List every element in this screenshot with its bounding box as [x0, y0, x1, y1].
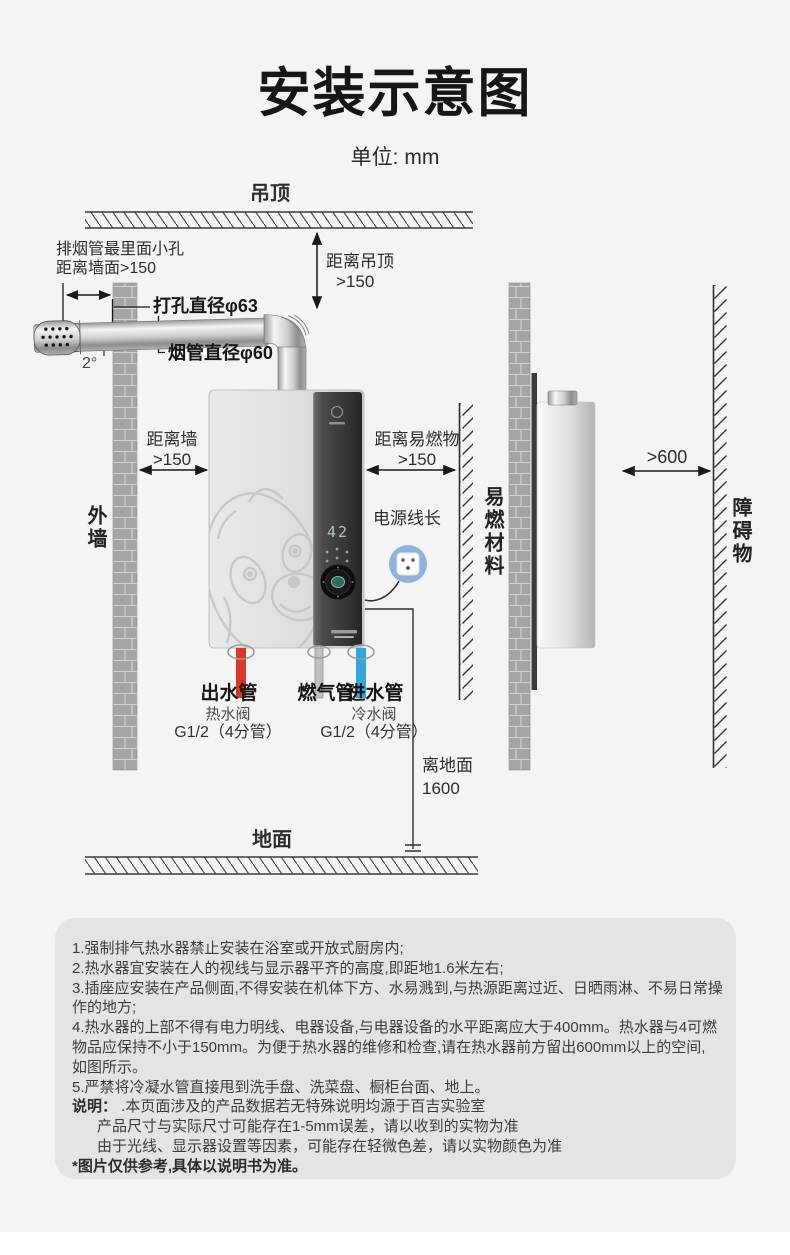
dist-ceiling-value: >150	[336, 272, 374, 292]
hot-valve-spec: G1/2（4分管）	[163, 724, 293, 742]
above-ground-value: 1600	[422, 779, 460, 799]
model-label	[331, 630, 357, 634]
tilt-angle-label: 2°	[82, 355, 97, 373]
note-line: 产品尺寸与实际尺寸可能存在1-5mm误差，请以收到的实物为准	[72, 1117, 722, 1137]
side-view-wall-brick	[509, 283, 530, 770]
outlet-pipe-label: 出水管	[189, 683, 269, 705]
flue-diameter-label: 烟管直径φ60	[168, 343, 273, 364]
remark-text: .本页面涉及的产品数据若无特殊说明均源于百吉实验室	[117, 1098, 485, 1115]
ceiling-label: 吊顶	[230, 183, 310, 206]
water-heater-side	[532, 373, 596, 690]
dist-wall-label: 距离墙	[127, 430, 217, 450]
above-ground-label: 离地面	[422, 756, 473, 776]
note-line: 3.插座应安装在产品侧面,不得安装在机体下方、水易溅到,与热源距离过近、日晒雨淋…	[72, 979, 722, 999]
inlet-pipe-label: 进水管	[335, 683, 415, 705]
hot-valve-label: 热水阀	[188, 706, 268, 723]
product-install-diagram-page: 安装示意图 单位: mm	[0, 0, 790, 1255]
power-cord	[365, 581, 399, 601]
obstacle-label: 障碍物	[728, 497, 751, 566]
note-line-disclaimer: *图片仅供参考,具体以说明书为准。	[72, 1157, 722, 1177]
flue-hole-note-line2: 距离墙面>150	[56, 260, 156, 278]
control-panel	[313, 392, 362, 646]
outer-wall-brick	[113, 283, 137, 770]
power-socket	[365, 545, 427, 601]
dist-flammable-label: 距离易燃物	[362, 430, 472, 450]
mount-bracket	[532, 373, 538, 690]
dist-flammable-value: >150	[362, 450, 472, 470]
bottom-margin	[0, 1232, 790, 1255]
outer-wall-label: 外墙	[83, 505, 106, 551]
note-line: 2.热水器宜安装在人的视线与显示器平齐的高度,即距地1.6米左右;	[72, 959, 722, 979]
flue-hole-measure	[63, 283, 110, 322]
model-sublabel	[334, 636, 354, 638]
power-cord-label: 电源线长	[373, 509, 441, 529]
ground-label: 地面	[232, 829, 312, 852]
cold-valve-spec: G1/2（4分管）	[309, 724, 439, 742]
note-line: 4.热水器的上部不得有电力明线、电器设备,与电器设备的水平距离应大于400mm。…	[72, 1018, 722, 1038]
remark-prefix: 说明：	[72, 1098, 117, 1115]
note-line: 由于光线、显示器设置等因素，可能存在轻微色差，请以实物颜色为准	[72, 1137, 722, 1157]
note-line: 作的地方;	[72, 998, 722, 1018]
notes-panel: 1.强制排气热水器禁止安装在浴室或开放式厨房内; 2.热水器宜安装在人的视线与显…	[55, 918, 736, 1179]
temperature-display: 42	[315, 524, 361, 541]
dist-wall-value: >150	[127, 450, 217, 470]
brand-wordmark	[329, 422, 345, 425]
note-line: 如图所示。	[72, 1058, 722, 1078]
flue-hole-note-line1: 排烟管最里面小孔	[56, 241, 184, 259]
note-line: 物品应保持不小于150mm。为便于热水器的维修和检查,请在热水器前方留出600m…	[72, 1038, 722, 1058]
dist-ceiling-label: 距离吊顶	[326, 252, 394, 272]
obstacle-hatch-line	[714, 285, 728, 768]
cold-valve-label: 冷水阀	[334, 706, 414, 723]
note-line: 5.严禁将冷凝水管直接甩到洗手盘、洗菜盘、橱柜台面、地上。	[72, 1078, 722, 1098]
note-line: 1.强制排气热水器禁止安装在浴室或开放式厨房内;	[72, 939, 722, 959]
dist-obstacle-value: >600	[622, 447, 712, 468]
ground-hatch	[85, 857, 478, 874]
flammable-material-label: 易燃材料	[480, 486, 503, 578]
drill-diameter-label: 打孔直径φ63	[153, 296, 258, 317]
ceiling-hatch	[85, 212, 473, 228]
control-knob	[321, 565, 356, 600]
note-line-remark: 说明： .本页面涉及的产品数据若无特殊说明均源于百吉实验室	[72, 1097, 722, 1117]
side-flue-cap	[548, 391, 577, 405]
